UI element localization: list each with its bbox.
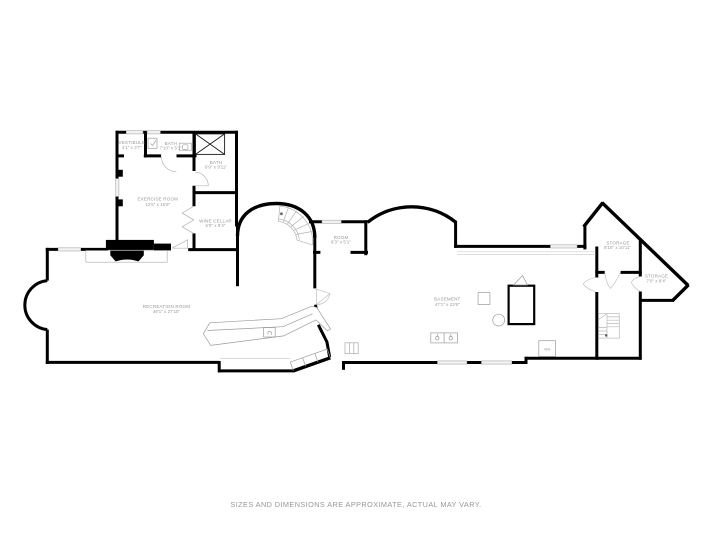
svg-text:6'9" x 9'11": 6'9" x 9'11": [205, 165, 227, 170]
svg-text:7'10" x 5'1": 7'10" x 5'1": [160, 146, 183, 151]
svg-text:8'10" x 10'11": 8'10" x 10'11": [604, 245, 631, 250]
svg-text:47'1" x 23'6": 47'1" x 23'6": [435, 302, 460, 307]
svg-text:9'3" x 5'1": 9'3" x 5'1": [331, 240, 351, 245]
svg-text:SIZES AND DIMENSIONS ARE APPRO: SIZES AND DIMENSIONS ARE APPROXIMATE, AC…: [230, 500, 481, 509]
svg-text:12'6" x 15'8": 12'6" x 15'8": [145, 202, 170, 207]
svg-text:7'0" x 8'4": 7'0" x 8'4": [647, 278, 667, 283]
svg-text:4'1" x 3'7": 4'1" x 3'7": [122, 145, 142, 150]
svg-text:49'1" x 27'10": 49'1" x 27'10": [153, 309, 181, 314]
svg-text:RECREATION ROOM: RECREATION ROOM: [143, 304, 190, 309]
svg-text:WH: WH: [544, 347, 550, 351]
svg-text:6'9" x 9'4": 6'9" x 9'4": [206, 223, 226, 228]
